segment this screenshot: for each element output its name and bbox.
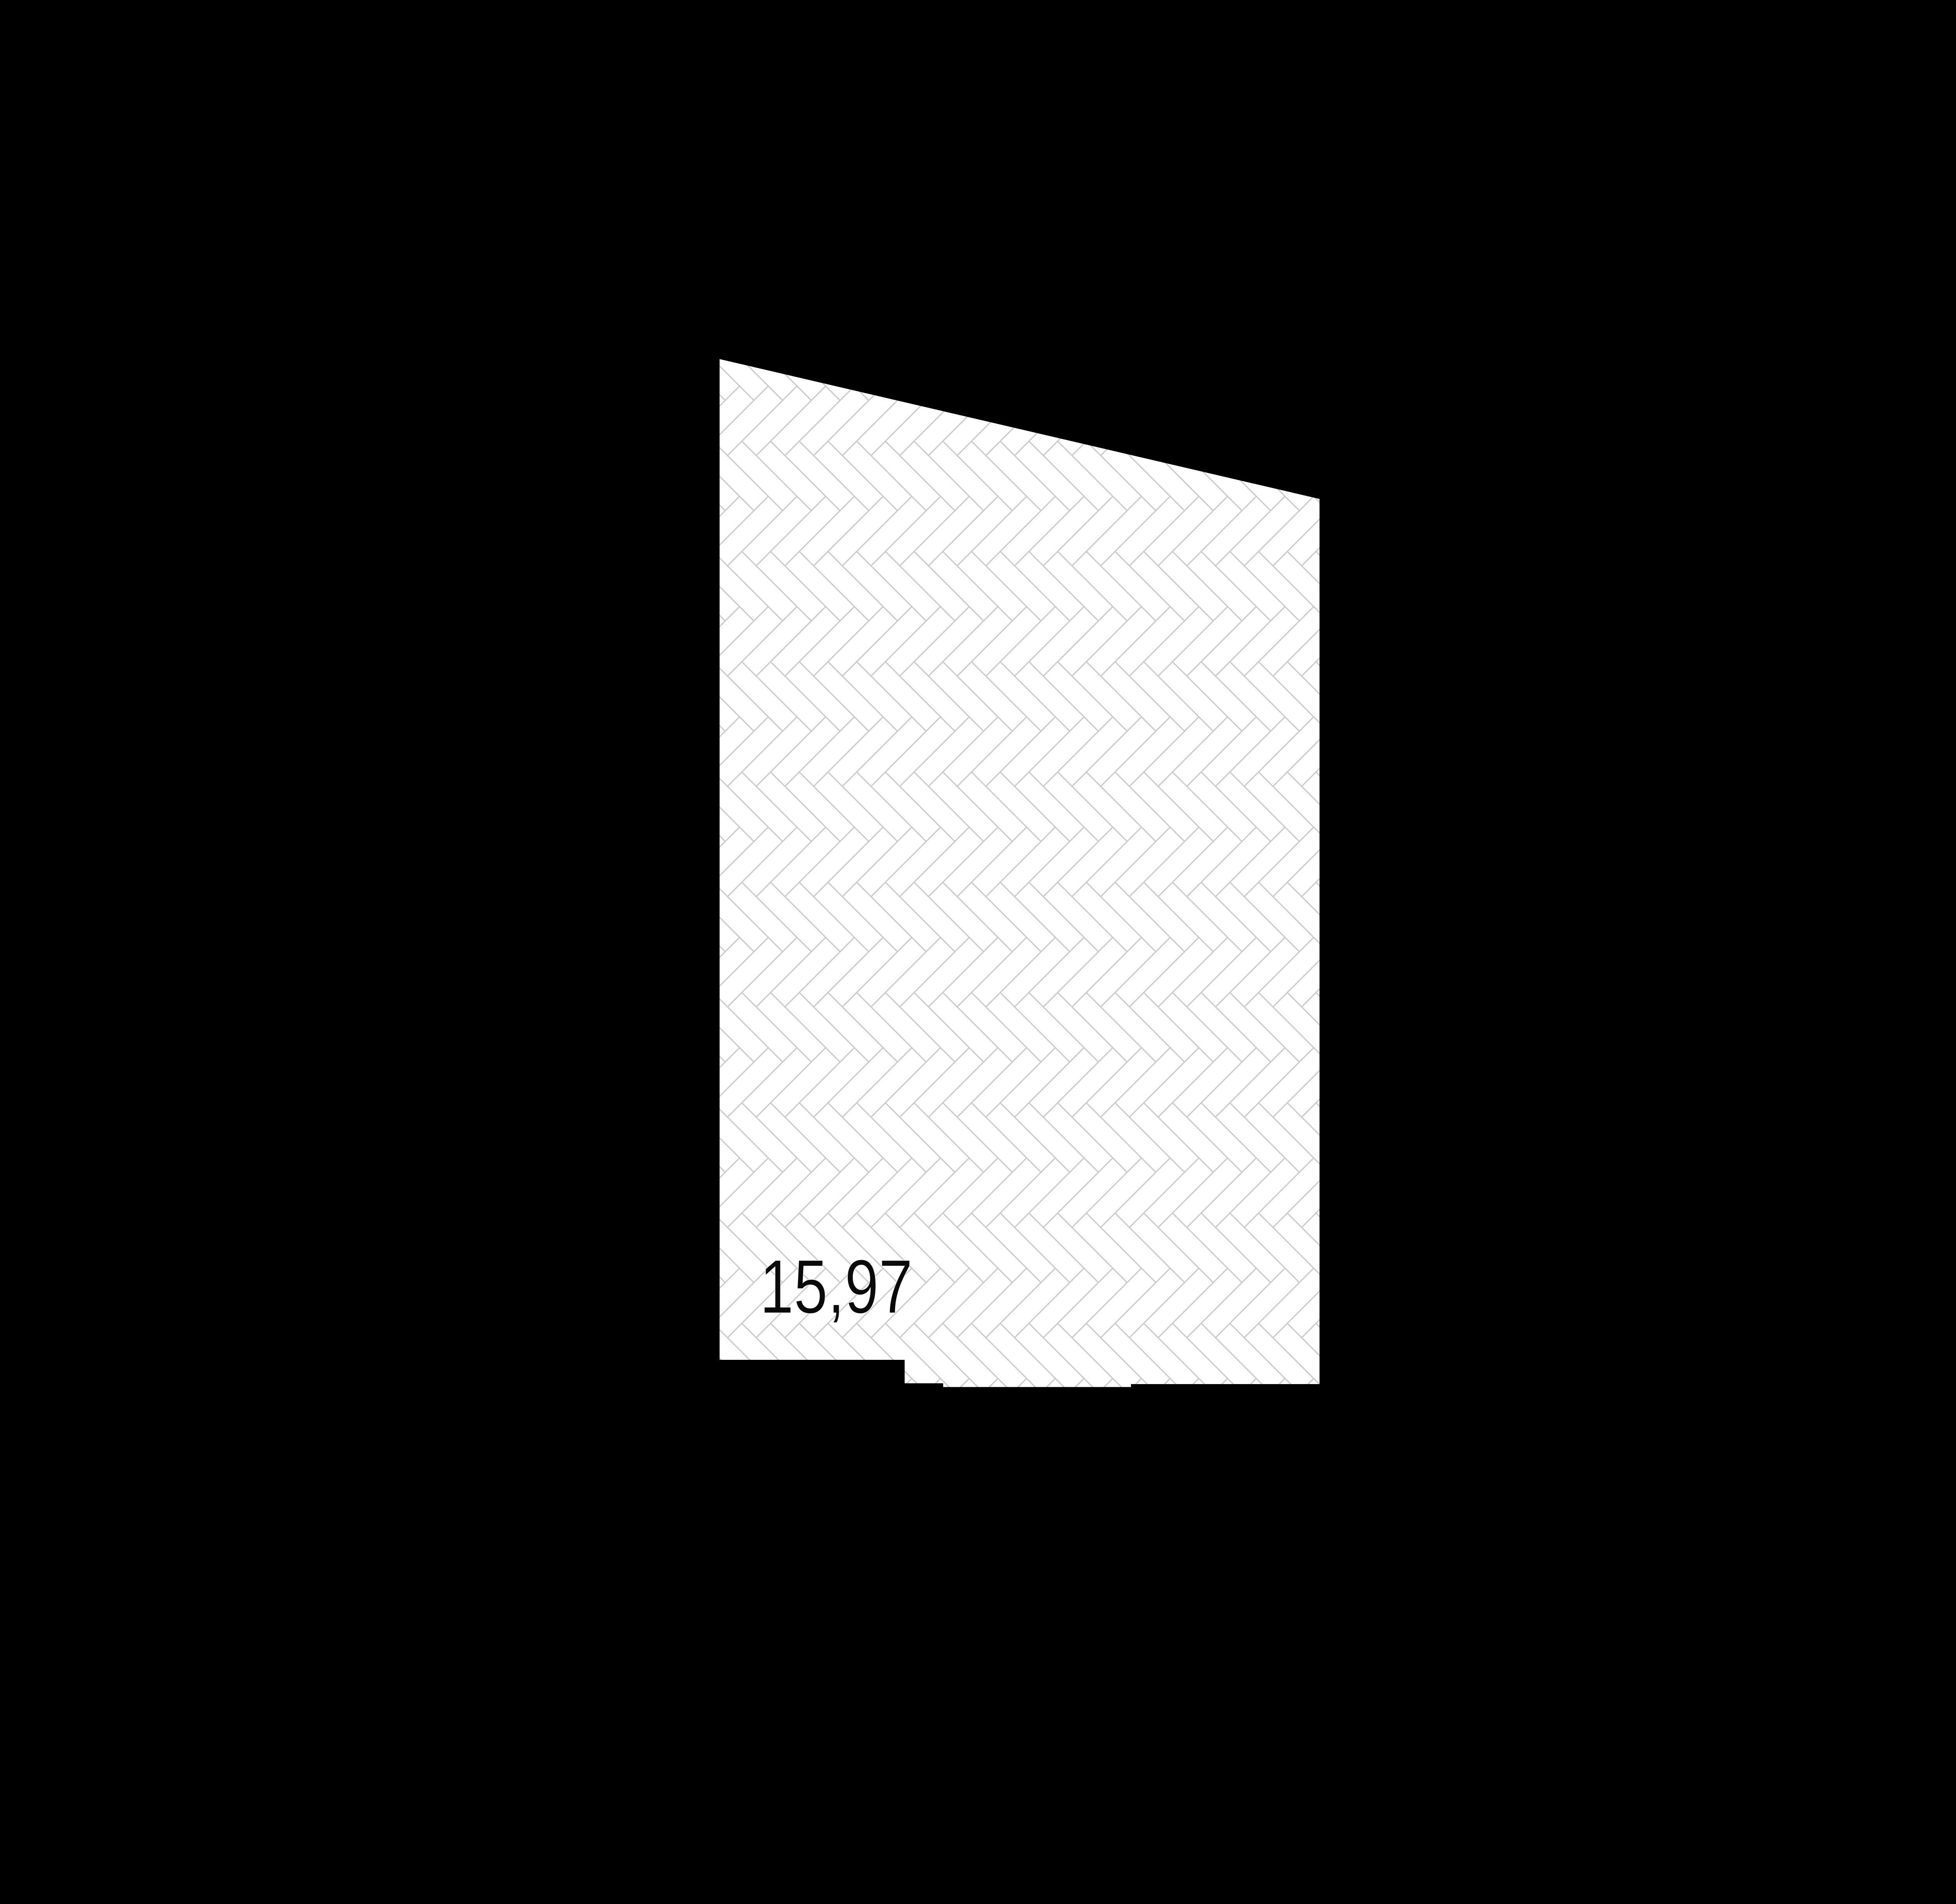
svg-text:15,97: 15,97 bbox=[760, 1244, 913, 1329]
